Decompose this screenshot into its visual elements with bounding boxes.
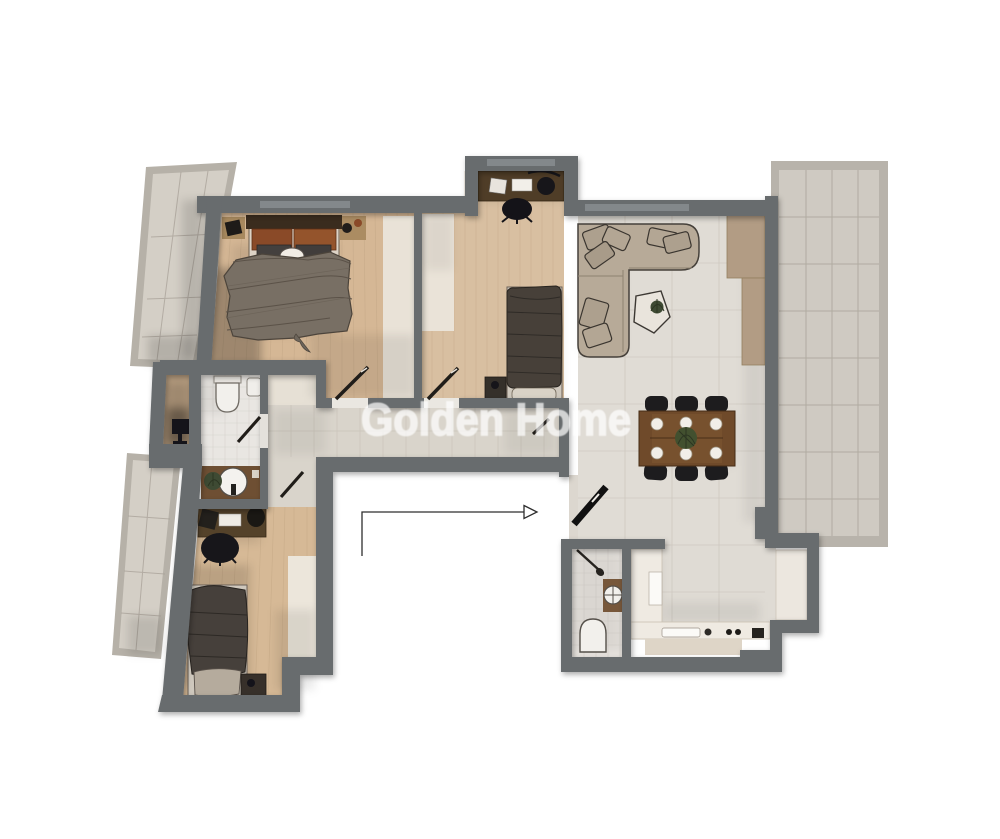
svg-text:Golden Home: Golden Home xyxy=(361,394,631,445)
